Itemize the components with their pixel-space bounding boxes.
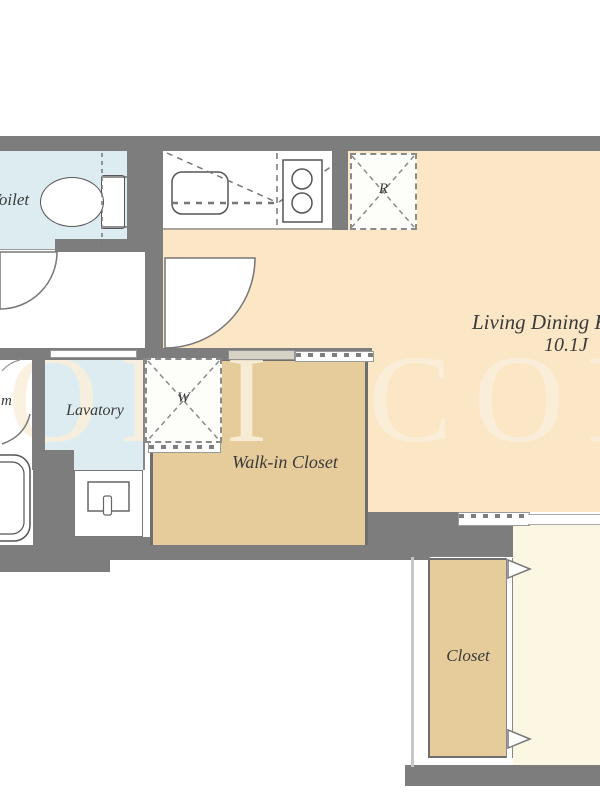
toilet-label: Toilet — [0, 191, 29, 210]
living-dining-label: Living Dining K — [472, 311, 600, 334]
refrigerator-symbol: R — [350, 181, 417, 198]
living-dining-size-label: 10.1J — [530, 334, 600, 356]
hall-living-door-arc — [165, 258, 255, 348]
closet-label: Closet — [428, 647, 508, 666]
washer-symbol: W — [145, 390, 222, 407]
kitchen-sink — [172, 172, 228, 214]
bathtub — [0, 455, 30, 541]
closet-door-mark-top — [508, 560, 530, 578]
bathroom-door-arc — [2, 414, 30, 444]
fixtures-lineart — [0, 0, 600, 800]
lavatory-label: Lavatory — [50, 402, 140, 420]
floorplan: ORI COR — [0, 0, 600, 800]
walk-in-closet-label: Walk-in Closet — [195, 453, 375, 473]
closet-door-mark-bottom — [508, 730, 530, 748]
bathroom-door-arc-top — [2, 360, 20, 371]
toilet-door-arc — [0, 252, 57, 309]
bathroom-label: m — [1, 393, 12, 410]
